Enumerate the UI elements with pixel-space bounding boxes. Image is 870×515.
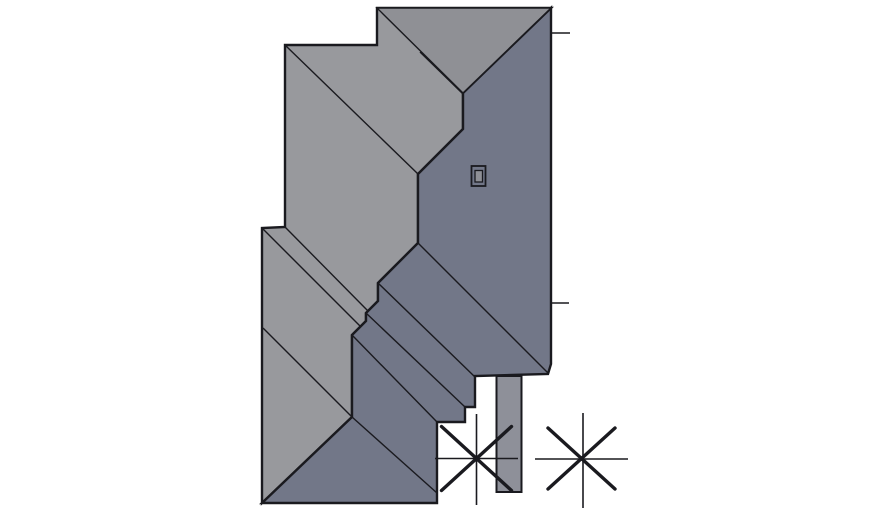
dimension-ticks (551, 33, 570, 303)
roof-plan-drawing (0, 0, 870, 515)
chimney-strip (497, 376, 522, 492)
cad-roof-plan-page (0, 0, 870, 515)
tree-symbol-2 (535, 413, 628, 508)
chimney-strip-rect (497, 376, 522, 492)
vent-inner-rect (475, 171, 483, 183)
